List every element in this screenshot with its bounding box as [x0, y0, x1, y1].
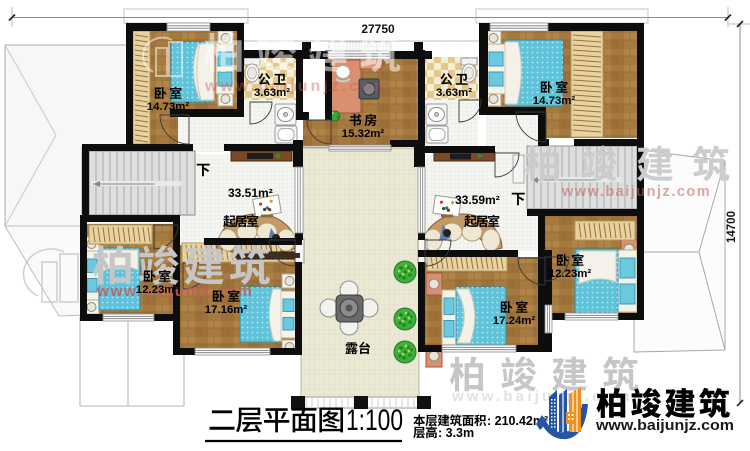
svg-text:3.63m²: 3.63m²: [254, 87, 290, 99]
svg-text:33.59m²: 33.59m²: [455, 193, 500, 207]
svg-text:www.baijunjz.com: www.baijunjz.com: [204, 78, 391, 95]
svg-text:12.23m²: 12.23m²: [549, 268, 592, 280]
svg-text:www.baijunjz.com: www.baijunjz.com: [595, 417, 734, 434]
svg-text:27750: 27750: [361, 22, 395, 36]
svg-text:17.24m²: 17.24m²: [493, 315, 536, 327]
svg-text:: 3.3m: : 3.3m: [438, 426, 474, 440]
svg-text:3.63m²: 3.63m²: [436, 87, 472, 99]
svg-text:15.32m²: 15.32m²: [342, 128, 385, 140]
svg-text:14.73m²: 14.73m²: [533, 95, 576, 107]
svg-text:33.51m²: 33.51m²: [228, 186, 273, 200]
svg-text:14.73m²: 14.73m²: [147, 101, 190, 113]
svg-text:1:100: 1:100: [346, 404, 403, 437]
svg-text:12.23m²: 12.23m²: [136, 284, 179, 296]
svg-text:14700: 14700: [726, 211, 738, 243]
svg-text:17.16m²: 17.16m²: [205, 304, 248, 316]
svg-text:www.baijunjz.com: www.baijunjz.com: [561, 184, 711, 200]
